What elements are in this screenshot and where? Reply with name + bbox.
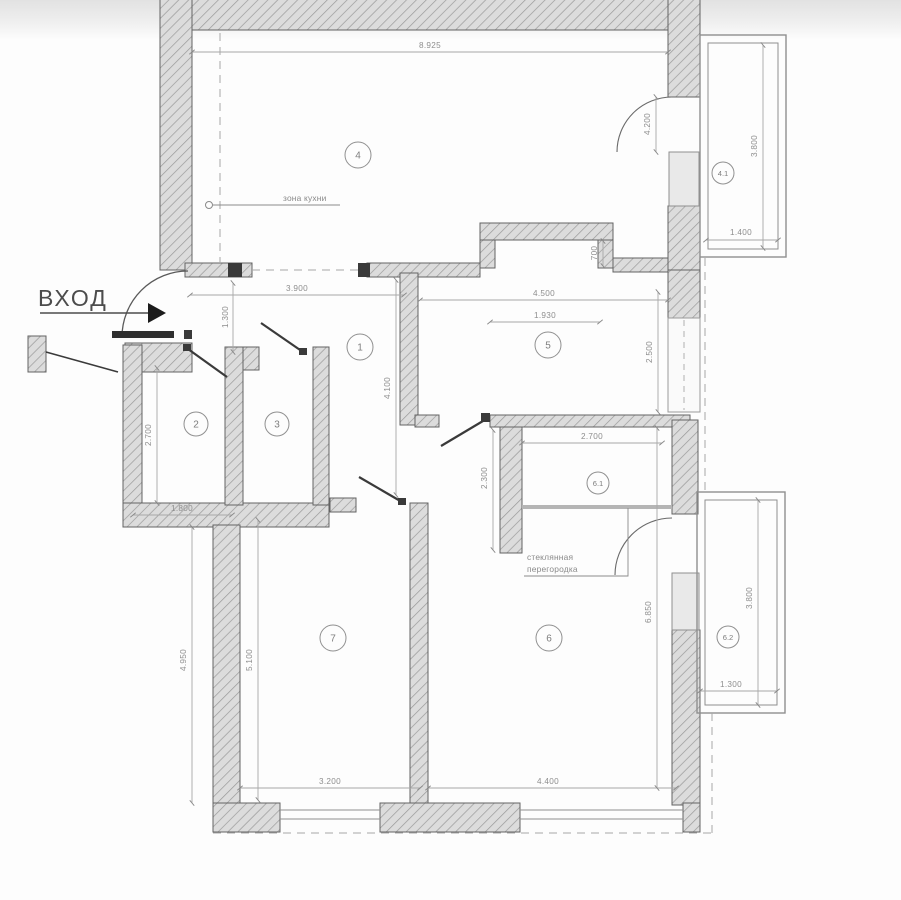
- room-label-6-2: 6.2: [717, 626, 739, 648]
- floor-plan-canvas: ВХОД зона кухни стеклянная перегородка 4…: [0, 0, 901, 900]
- wall-corridor-bottom-stub: [330, 498, 356, 512]
- wall-room2-left: [123, 345, 142, 527]
- dim-room2-width: 1.800: [171, 504, 193, 513]
- room-label-2: 2: [184, 412, 208, 436]
- wall-exterior-stub: [28, 336, 46, 372]
- wall-room5-bottom: [490, 415, 690, 427]
- balcony62-door-arc: [615, 518, 672, 575]
- floor-plan-drawing: ВХОД зона кухни стеклянная перегородка 4…: [0, 0, 901, 900]
- dim-room61-depth: 2.300: [480, 467, 489, 489]
- walls: [28, 0, 700, 832]
- dim-room7-width: 3.200: [319, 777, 341, 786]
- room-labels: 4 4.1 1 5 2 3: [184, 142, 739, 651]
- room-label-7: 7: [320, 625, 346, 651]
- svg-text:7: 7: [330, 634, 336, 645]
- kitchen-zone-label: зона кухни: [283, 193, 327, 203]
- entrance-label: ВХОД: [38, 285, 108, 311]
- svg-text:6.1: 6.1: [593, 479, 604, 488]
- dim-room5-width: 4.500: [533, 289, 555, 298]
- glass-partition-label-1: стеклянная: [527, 552, 573, 562]
- wall-right-mid: [668, 270, 700, 318]
- balcony-41-outer: [700, 35, 786, 257]
- dim-niche-depth: 700: [590, 246, 599, 261]
- dim-balcony62-depth: 3.800: [745, 587, 754, 609]
- room-label-5: 5: [535, 332, 561, 358]
- balcony-62-inner: [705, 500, 777, 705]
- svg-text:6: 6: [546, 634, 552, 645]
- wall-bottom-seg1: [213, 803, 280, 832]
- annotation-kitchen-zone: зона кухни: [206, 193, 341, 209]
- wall-room61-left: [500, 427, 522, 553]
- dim-hall-width: 3.900: [286, 284, 308, 293]
- dim-top-width: 8.925: [419, 41, 441, 50]
- window-room4-right: [669, 152, 699, 206]
- wall-divider-r7-r6: [410, 503, 428, 805]
- entry-door-arc: [122, 271, 188, 337]
- glass-partition-label-2: перегородка: [527, 564, 578, 574]
- svg-text:6.2: 6.2: [723, 633, 734, 642]
- balcony-41-inner: [708, 43, 778, 249]
- dim-hall-depth: 1.300: [221, 306, 230, 328]
- dim-balcony41-depth: 3.800: [750, 135, 759, 157]
- room6-door-leaf: [441, 418, 488, 446]
- door-stop-room2: [183, 344, 191, 351]
- dim-room7-depth-outer: 4.950: [179, 649, 188, 671]
- kitchen-zone-marker: [206, 202, 213, 209]
- svg-text:5: 5: [545, 341, 551, 352]
- door-stop-room7: [398, 498, 406, 505]
- window-room6-right: [672, 573, 699, 630]
- wall-bottom-seg2: [380, 803, 520, 832]
- room-label-6: 6: [536, 625, 562, 651]
- room-label-3: 3: [265, 412, 289, 436]
- wall-bottom-seg3: [683, 803, 700, 832]
- room3-door-leaf: [261, 323, 303, 352]
- dim-room61-width: 2.700: [581, 432, 603, 441]
- wall-left-room4: [160, 0, 192, 270]
- wall-right-below-window: [668, 206, 700, 270]
- door-stop-corridor-right: [358, 263, 370, 277]
- svg-text:4: 4: [355, 151, 361, 162]
- door-stop-entry: [184, 330, 192, 339]
- dim-room6-depth: 6.850: [644, 601, 653, 623]
- dim-balcony62-width: 1.300: [720, 680, 742, 689]
- room2-door-leaf: [188, 349, 227, 377]
- dim-room5-depth: 2.500: [645, 341, 654, 363]
- dim-balcony41-door: 4.200: [643, 113, 652, 135]
- annotation-glass-partition: стеклянная перегородка: [524, 508, 628, 576]
- window-bottom-room7: [280, 810, 380, 819]
- dim-room2-depth: 2.700: [144, 424, 153, 446]
- entrance-arrow-head: [148, 303, 166, 323]
- wall-niche-left: [480, 240, 495, 268]
- svg-text:1: 1: [357, 343, 363, 354]
- wall-room4-bottom-right: [367, 263, 480, 277]
- wall-corridor-right: [400, 273, 418, 425]
- exterior-door-leaf: [46, 352, 118, 372]
- wall-room3-top-stub: [243, 347, 259, 370]
- door-stop-room3: [299, 348, 307, 355]
- room-label-6-1: 6.1: [587, 472, 609, 494]
- svg-text:2: 2: [193, 420, 199, 431]
- wall-room5-top-right: [613, 258, 668, 272]
- window-bottom-room6: [520, 810, 683, 819]
- entrance-marker: ВХОД: [38, 285, 166, 323]
- dim-balcony41-width: 1.400: [730, 228, 752, 237]
- entry-door-leaf: [112, 331, 174, 338]
- room-label-4: 4: [345, 142, 371, 168]
- door-stop-corridor-left: [228, 263, 242, 277]
- wall-room5-bottom-left: [415, 415, 439, 427]
- wall-room3-right: [313, 347, 329, 505]
- glass-partition: [522, 505, 672, 509]
- dim-room7-depth: 5.100: [245, 649, 254, 671]
- dim-corridor-depth: 4.100: [383, 377, 392, 399]
- room-label-1: 1: [347, 334, 373, 360]
- wall-right-upper: [668, 0, 700, 97]
- wall-divider-r2-r3: [225, 347, 243, 505]
- door-stop-room6: [481, 413, 490, 422]
- wall-right-lower: [672, 630, 700, 805]
- svg-text:3: 3: [274, 420, 280, 431]
- dim-niche-width: 1.930: [534, 311, 556, 320]
- dim-room6-width: 4.400: [537, 777, 559, 786]
- wall-niche-right: [598, 240, 613, 268]
- wall-top: [160, 0, 700, 30]
- wall-niche-top: [480, 223, 613, 240]
- balconies: [697, 35, 786, 713]
- svg-text:4.1: 4.1: [718, 169, 729, 178]
- wall-room7-left: [213, 525, 240, 805]
- room-label-4-1: 4.1: [712, 162, 734, 184]
- wall-room61-right: [672, 420, 698, 514]
